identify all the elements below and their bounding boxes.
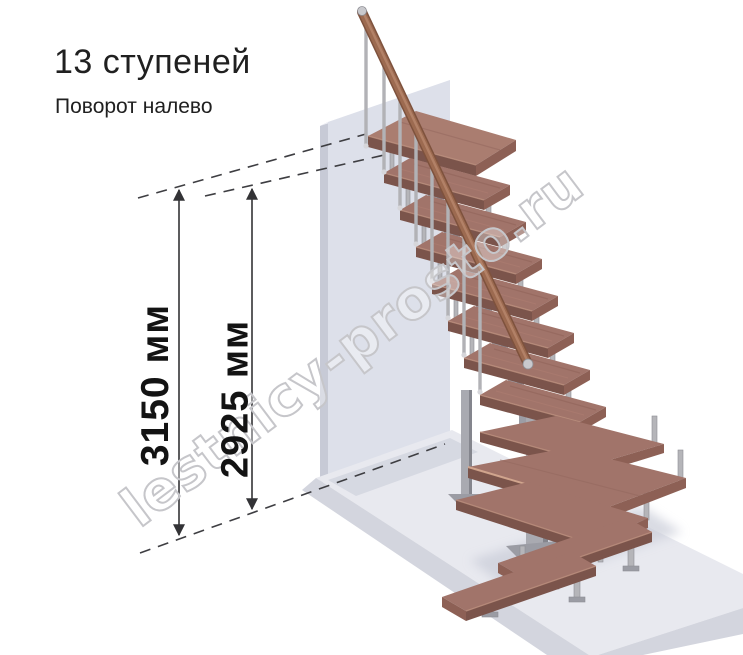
diagram-canvas: lestnicy-prosto.ru 13 ступеней Поворот н… — [0, 0, 743, 655]
page-subtitle: Поворот налево — [55, 95, 213, 119]
dimension-label-total: 3150 мм — [134, 304, 178, 466]
dimension-label-flight: 2925 мм — [215, 320, 258, 478]
page-title: 13 ступеней — [54, 44, 251, 81]
handrail-top-cap — [358, 7, 367, 16]
handrail-end-cap — [523, 359, 533, 369]
